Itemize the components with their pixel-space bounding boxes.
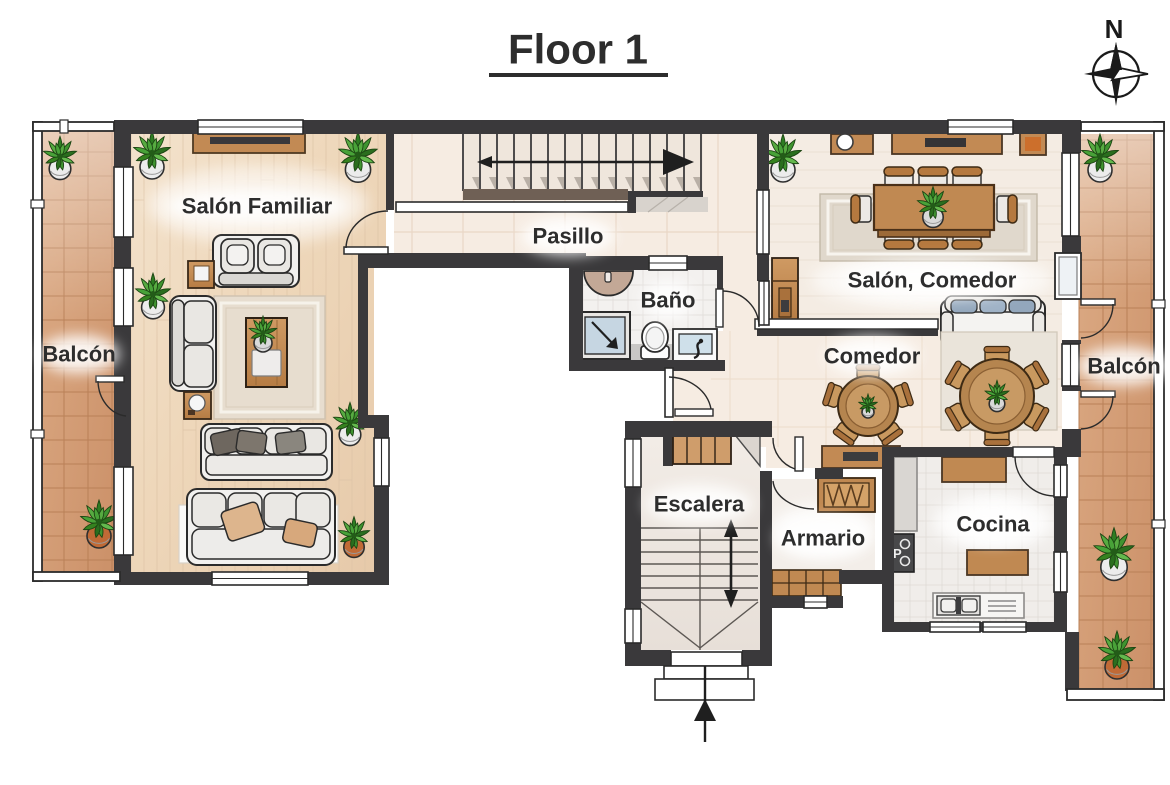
svg-text:Cocina: Cocina <box>956 512 1030 537</box>
svg-text:Pasillo: Pasillo <box>533 224 604 249</box>
svg-text:Comedor: Comedor <box>824 344 921 369</box>
svg-text:Baño: Baño <box>641 288 696 313</box>
svg-text:Salón Familiar: Salón Familiar <box>182 194 333 219</box>
svg-text:N: N <box>1105 14 1124 44</box>
svg-text:Balcón: Balcón <box>42 342 115 367</box>
svg-text:P: P <box>893 546 902 561</box>
svg-text:Floor 1: Floor 1 <box>508 26 648 73</box>
svg-text:Escalera: Escalera <box>654 492 745 517</box>
svg-text:Salón, Comedor: Salón, Comedor <box>848 268 1017 293</box>
svg-text:Balcón: Balcón <box>1087 354 1160 379</box>
svg-text:Armario: Armario <box>781 526 865 551</box>
